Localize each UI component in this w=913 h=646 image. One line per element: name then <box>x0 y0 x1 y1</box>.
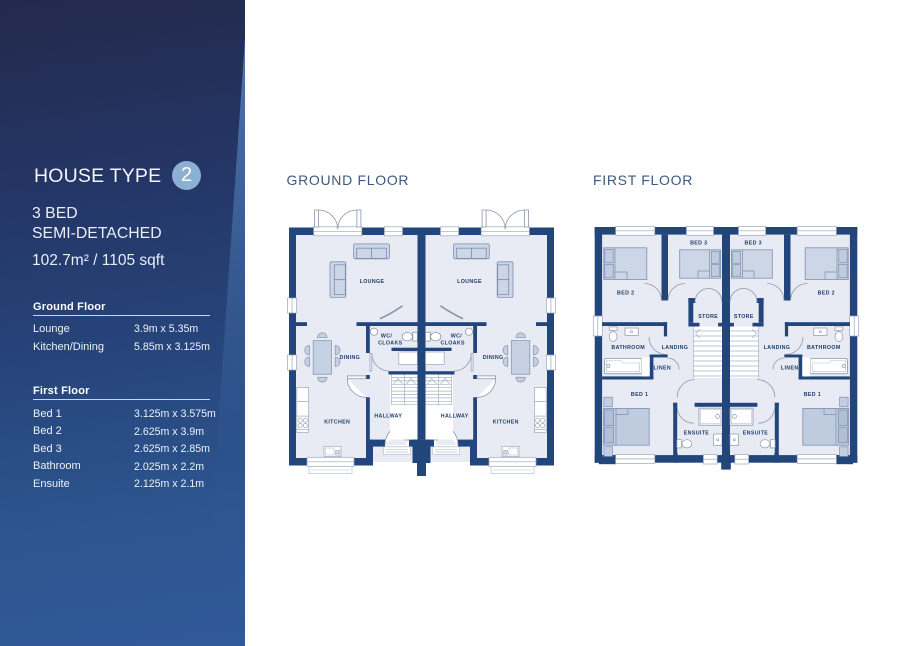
svg-text:HALLWAY: HALLWAY <box>374 413 402 419</box>
svg-text:CLOAKS: CLOAKS <box>378 341 403 347</box>
svg-text:BED 3: BED 3 <box>690 241 707 247</box>
svg-text:BATHROOM: BATHROOM <box>807 345 841 351</box>
svg-text:CLOAKS: CLOAKS <box>440 341 465 347</box>
svg-text:BED 2: BED 2 <box>617 290 634 296</box>
svg-text:KITCHEN: KITCHEN <box>493 420 519 426</box>
svg-text:ENSUITE: ENSUITE <box>743 430 769 436</box>
svg-text:LINEN: LINEN <box>653 366 671 372</box>
svg-text:LINEN: LINEN <box>781 366 799 372</box>
svg-text:DINING: DINING <box>483 355 504 361</box>
svg-text:BED 3: BED 3 <box>745 241 762 247</box>
svg-text:BATHROOM: BATHROOM <box>611 345 645 351</box>
svg-text:DINING: DINING <box>339 355 360 361</box>
svg-text:BED 2: BED 2 <box>818 290 835 296</box>
svg-text:LOUNGE: LOUNGE <box>360 279 385 285</box>
svg-text:LOUNGE: LOUNGE <box>457 279 482 285</box>
svg-text:BED 1: BED 1 <box>804 392 821 398</box>
svg-text:WC/: WC/ <box>451 334 463 340</box>
svg-text:BED 1: BED 1 <box>631 392 648 398</box>
svg-text:KITCHEN: KITCHEN <box>324 420 350 426</box>
svg-text:STORE: STORE <box>734 314 754 320</box>
svg-text:STORE: STORE <box>698 314 718 320</box>
svg-text:ENSUITE: ENSUITE <box>684 430 710 436</box>
svg-text:HALLWAY: HALLWAY <box>441 413 469 419</box>
svg-text:WC/: WC/ <box>381 334 393 340</box>
svg-text:LANDING: LANDING <box>662 345 689 351</box>
svg-text:LANDING: LANDING <box>764 345 791 351</box>
